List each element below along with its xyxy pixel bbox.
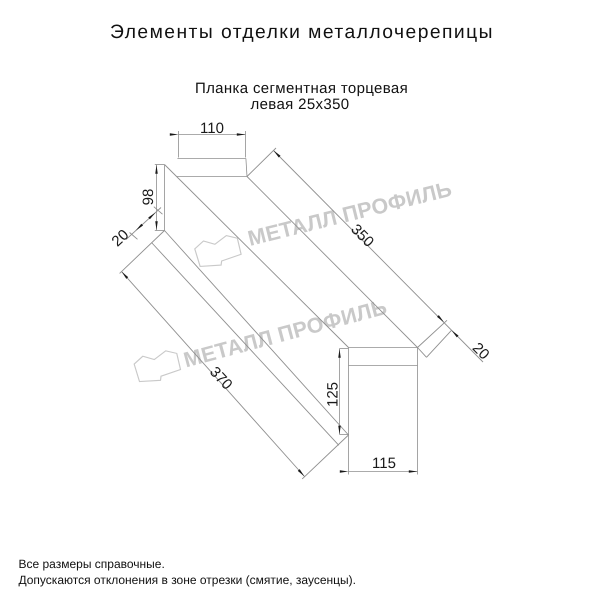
svg-text:98: 98 bbox=[140, 189, 157, 206]
svg-text:Допускаются отклонения в зоне: Допускаются отклонения в зоне отрезки (с… bbox=[19, 573, 356, 587]
svg-text:МЕТАЛЛ ПРОФИЛЬ: МЕТАЛЛ ПРОФИЛЬ bbox=[245, 177, 454, 251]
svg-text:Все размеры справочные.: Все размеры справочные. bbox=[19, 557, 165, 571]
svg-text:МЕТАЛЛ ПРОФИЛЬ: МЕТАЛЛ ПРОФИЛЬ bbox=[181, 295, 389, 372]
svg-text:левая 25х350: левая 25х350 bbox=[251, 96, 350, 113]
svg-text:370: 370 bbox=[206, 363, 236, 393]
svg-text:20: 20 bbox=[109, 226, 133, 250]
svg-text:Планка сегментная торцевая: Планка сегментная торцевая bbox=[195, 80, 408, 97]
svg-text:125: 125 bbox=[325, 382, 342, 407]
svg-text:110: 110 bbox=[200, 120, 224, 137]
svg-text:Элементы отделки металлочерепи: Элементы отделки металлочерепицы bbox=[110, 22, 494, 43]
svg-text:20: 20 bbox=[469, 339, 493, 363]
svg-text:115: 115 bbox=[372, 455, 396, 472]
